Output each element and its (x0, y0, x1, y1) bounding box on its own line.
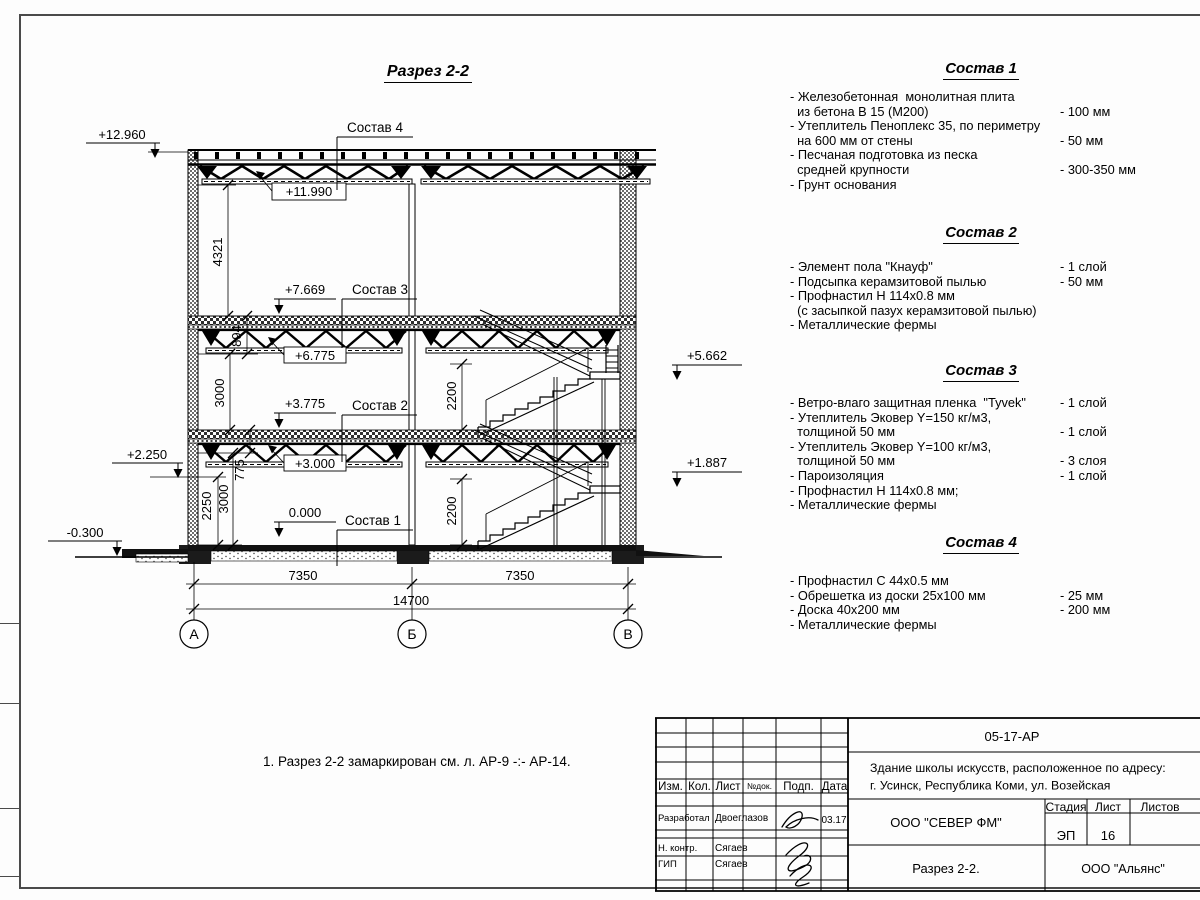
signature-marks (782, 812, 818, 886)
dim-label: 775 (232, 459, 247, 481)
elevation-label: +12.960 (98, 127, 145, 142)
composition-item: - Профнастил Н 114х0.8 мм (790, 289, 1200, 304)
elevation-label: +6.775 (295, 348, 335, 363)
axis-label-a: А (189, 626, 199, 642)
composition-list-1: Состав 1 - Железобетонная монолитная пли… (790, 60, 1200, 77)
composition-list-4: Состав 4 - Профнастил С 44х0.5 мм - Обре… (790, 534, 1200, 551)
composition-item: - Профнастил Н 114х0.8 мм; (790, 484, 1200, 499)
stamp-role-ncontrol: Н. контр. (658, 843, 697, 854)
elevation-label: +3.000 (295, 456, 335, 471)
filing-margin-line (0, 808, 19, 809)
stamp-sheet-label: Лист (1095, 800, 1122, 814)
composition-item: - Профнастил С 44х0.5 мм (790, 574, 1200, 589)
composition-item: - Ветро-влаго защитная пленка "Tyvek"- 1… (790, 396, 1200, 411)
stamp-stage-value: ЭП (1057, 828, 1076, 843)
composition-item: - Элемент пола "Кнауф"- 1 слой (790, 260, 1200, 275)
staircase (474, 310, 620, 549)
composition-item: - Доска 40х200 мм- 200 мм (790, 603, 1200, 618)
composition-item: средней крупности- 300-350 мм (790, 163, 1200, 178)
stamp-role-gip: ГИП (658, 859, 677, 870)
dim-label: 4321 (210, 238, 225, 267)
stamp-col-ndok: №док. (747, 781, 772, 791)
axis-label-b: Б (407, 626, 416, 642)
stamp-role-developer: Разработал (658, 813, 710, 824)
composition-item: - Металлические фермы (790, 618, 1200, 633)
elevation-label: +11.990 (286, 184, 332, 199)
dim-label: 14700 (393, 593, 429, 608)
title-block: Изм. Кол. Лист №док. Подп. Дата Разработ… (655, 716, 1200, 892)
composition-item: - Обрешетка из доски 25х100 мм- 25 мм (790, 589, 1200, 604)
composition-heading: Состав 1 (790, 60, 1172, 77)
callout-label: Состав 1 (345, 513, 401, 528)
stamp-sheet-value: 16 (1101, 828, 1115, 843)
callout-label: Состав 2 (352, 398, 408, 413)
composition-item: (с засыпкой пазух керамзитовой пылью) (790, 304, 1200, 319)
filing-margin-line (0, 876, 19, 877)
composition-item: толщиной 50 мм- 3 слоя (790, 454, 1200, 469)
composition-heading: Состав 2 (790, 224, 1172, 241)
section-drawing: А Б В +12.960 +2.250 -0.300 +5.662 +1.88… (0, 0, 780, 700)
roof-structure (188, 150, 656, 184)
elevation-label: +2.250 (127, 447, 167, 462)
dimension-lines (213, 180, 467, 550)
composition-item: из бетона В 15 (М200)- 100 мм (790, 105, 1200, 120)
stamp-name-ncontrol: Сягаев (715, 843, 748, 854)
dim-label: 7350 (289, 568, 318, 583)
composition-item: - Утеплитель Эковер Y=100 кг/м3, (790, 440, 1200, 455)
stamp-contractor: ООО "Альянс" (1081, 862, 1165, 876)
elevation-label: +3.775 (285, 396, 325, 411)
composition-list-3: Состав 3 - Ветро-влаго защитная пленка "… (790, 362, 1200, 379)
stamp-col-list: Лист (716, 781, 742, 793)
composition-item: толщиной 50 мм- 1 слой (790, 425, 1200, 440)
composition-item: - Металлические фермы (790, 318, 1200, 333)
stamp-col-kol: Кол. (688, 781, 711, 793)
dim-label: 7350 (506, 568, 535, 583)
stamp-org: ООО "СЕВЕР ФМ" (890, 815, 1002, 830)
dim-label: 3000 (216, 485, 231, 514)
filing-margin-line (0, 703, 19, 704)
composition-item: - Железобетонная монолитная плита (790, 90, 1200, 105)
elevation-label: +7.669 (285, 282, 325, 297)
composition-item: - Подсыпка керамзитовой пылью- 50 мм (790, 275, 1200, 290)
dim-label: 2200 (444, 497, 459, 526)
stamp-doc-code: 05-17-АР (985, 729, 1040, 744)
stamp-sheet-title: Разрез 2-2. (912, 861, 979, 876)
dim-label: 2200 (444, 382, 459, 411)
walls (179, 150, 644, 564)
stamp-name-gip: Сягаев (715, 859, 748, 870)
composition-item: на 600 мм от стены- 50 мм (790, 134, 1200, 149)
composition-item: - Пароизоляция- 1 слой (790, 469, 1200, 484)
dim-label: 894 (229, 325, 244, 347)
stamp-col-izm: Изм. (658, 781, 683, 793)
composition-item: - Утеплитель Эковер Y=150 кг/м3, (790, 411, 1200, 426)
composition-callouts: Состав 4 Состав 3 Состав 2 Состав 1 (337, 120, 417, 566)
dim-label: 3000 (212, 379, 227, 408)
elevation-label: -0.300 (67, 525, 104, 540)
stamp-stage-label: Стадия (1046, 800, 1087, 814)
elevation-label: +1.887 (687, 455, 727, 470)
stamp-name-developer: Двоеглазов (715, 813, 768, 824)
stamp-col-podp: Подп. (783, 781, 814, 793)
composition-item: - Утеплитель Пеноплекс 35, по периметру (790, 119, 1200, 134)
composition-heading: Состав 4 (790, 534, 1172, 551)
callout-label: Состав 4 (347, 120, 403, 135)
callout-label: Состав 3 (352, 282, 408, 297)
stamp-project-line1: Здание школы искусств, расположенное по … (870, 761, 1166, 775)
composition-item: - Песчаная подготовка из песка (790, 148, 1200, 163)
dim-label: 2250 (199, 492, 214, 521)
axis-label-v: В (623, 626, 632, 642)
composition-heading: Состав 3 (790, 362, 1172, 379)
stamp-date-developer: 03.17 (821, 815, 846, 826)
elevation-label: +5.662 (687, 348, 727, 363)
drawing-note: 1. Разрез 2-2 замаркирован см. л. АР-9 -… (263, 754, 571, 769)
composition-item: - Грунт основания (790, 178, 1200, 193)
stamp-project-line2: г. Усинск, Республика Коми, ул. Возейска… (870, 779, 1110, 793)
stamp-col-data: Дата (822, 781, 848, 793)
composition-item: - Металлические фермы (790, 498, 1200, 513)
axis-bubbles: А Б В (180, 620, 642, 648)
elevation-label: 0.000 (289, 505, 322, 520)
stamp-sheets-label: Листов (1141, 800, 1180, 814)
composition-list-2: Состав 2 - Элемент пола "Кнауф"- 1 слой … (790, 224, 1200, 241)
